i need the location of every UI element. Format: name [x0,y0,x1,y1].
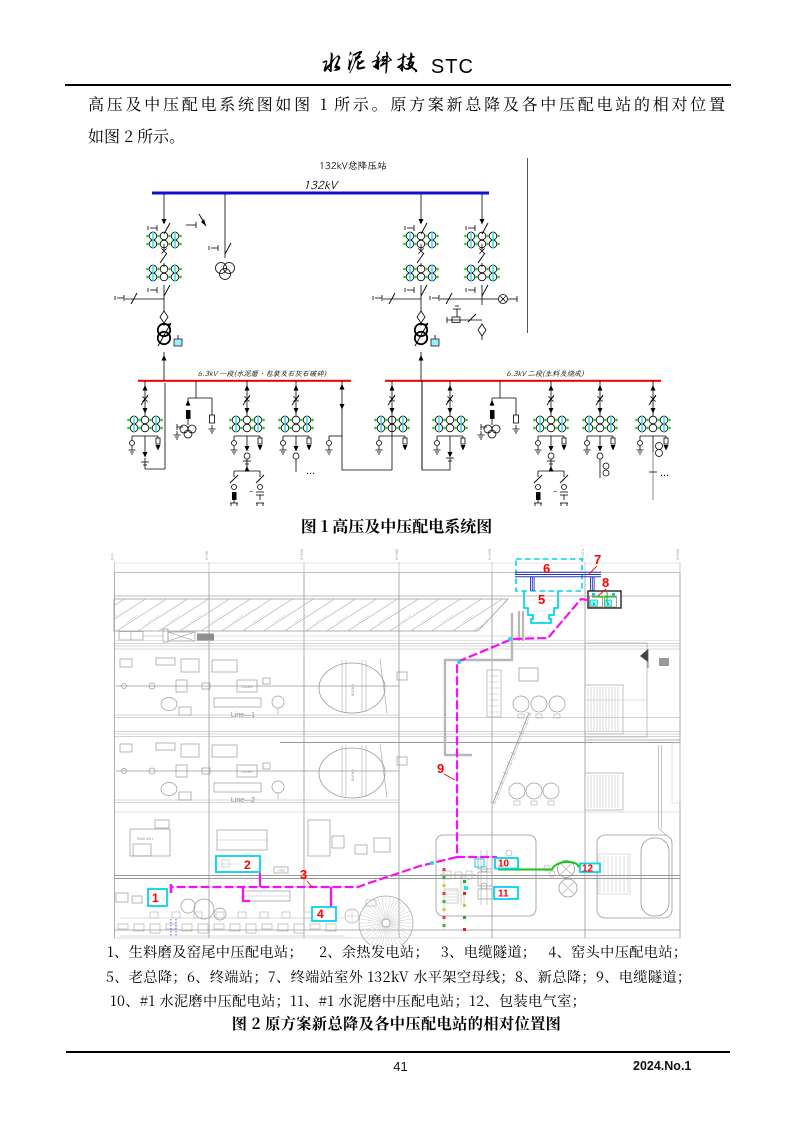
svg-text:12: 12 [582,864,594,875]
svg-text:BLEND: BLEND [351,769,355,781]
svg-text:10: 10 [498,859,510,870]
svg-text:Cooler: Cooler [241,769,253,774]
svg-text:0+285: 0+285 [394,548,399,560]
svg-text:RAW MILL: RAW MILL [137,837,154,841]
svg-text:6.3kV 二段(生料及烧成): 6.3kV 二段(生料及烧成) [506,369,584,379]
svg-text:5: 5 [538,592,545,607]
svg-text:Line—2: Line—2 [231,797,255,804]
svg-text:6: 6 [543,561,550,576]
svg-text:road: road [277,869,284,873]
svg-text:0+190: 0+190 [299,548,304,560]
svg-text:BLEND: BLEND [351,684,355,696]
svg-text:3: 3 [300,867,307,882]
svg-text:~: ~ [249,489,253,496]
svg-text:8: 8 [602,575,609,590]
svg-text:0+378: 0+378 [487,548,492,560]
svg-text:0+566: 0+566 [675,548,680,560]
svg-text:132kV: 132kV [303,178,339,193]
svg-text:0+0: 0+0 [110,552,115,560]
svg-text:9: 9 [437,761,444,776]
svg-text:7: 7 [594,552,601,567]
svg-text:6.3kV 一段(水泥磨、包装及石灰石破碎): 6.3kV 一段(水泥磨、包装及石灰石破碎) [198,369,327,379]
svg-text:...: ... [660,467,669,479]
svg-text:0+471: 0+471 [580,548,585,560]
svg-text:11: 11 [498,889,509,900]
svg-text:Line—1: Line—1 [231,712,255,719]
svg-text:Cooler: Cooler [241,684,253,689]
svg-text:0+95: 0+95 [204,550,209,560]
svg-text:2: 2 [244,858,251,872]
svg-text:4: 4 [317,907,324,921]
svg-text:...: ... [306,465,315,477]
svg-text:1: 1 [152,891,159,905]
svg-text:~: ~ [553,489,557,496]
svg-text:132kV总降压站: 132kV总降压站 [319,159,387,172]
